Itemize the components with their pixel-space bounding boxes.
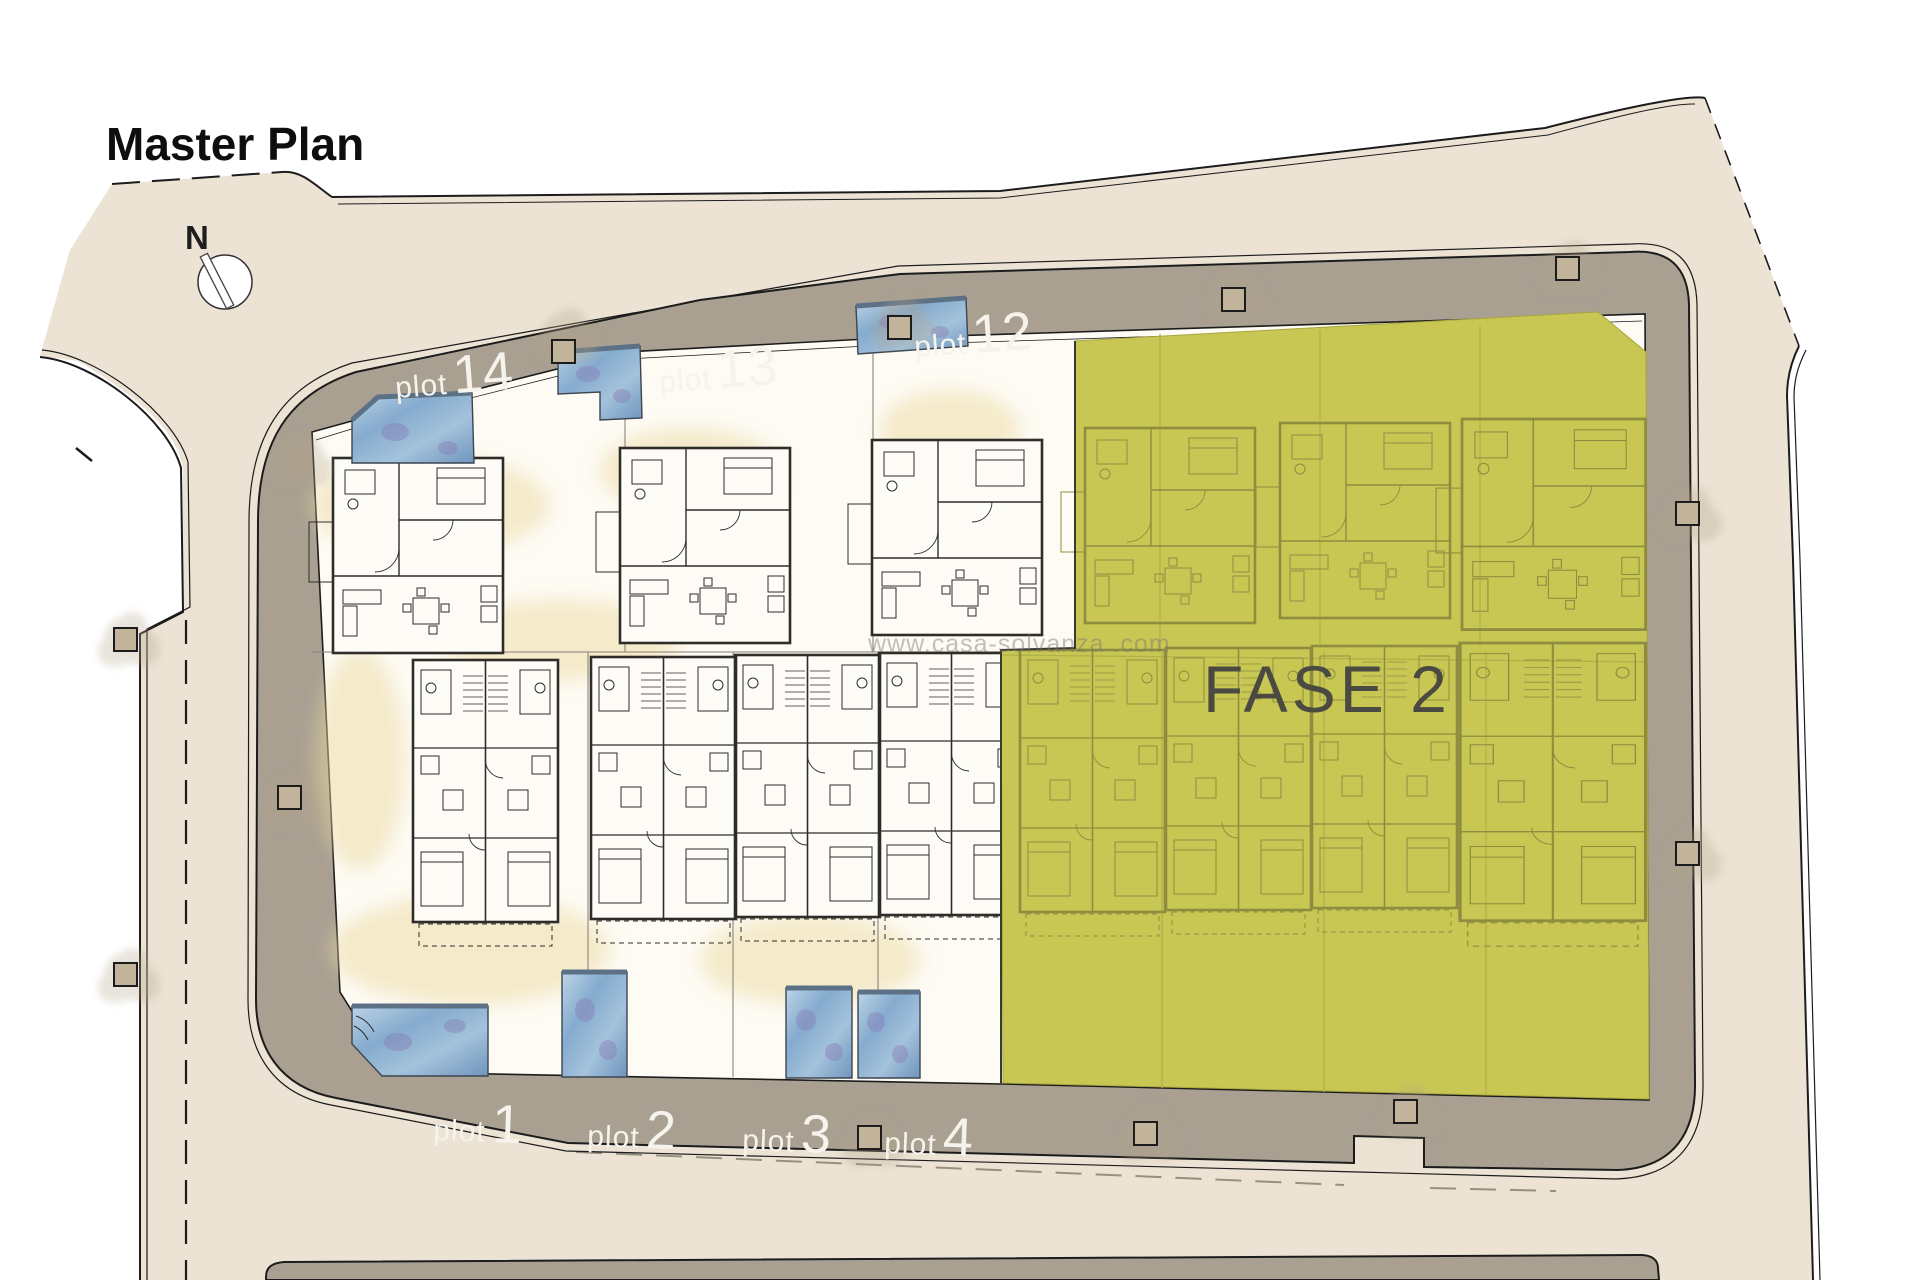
pool-plot-3 (786, 988, 852, 1078)
post-marker (552, 340, 575, 363)
boundary-tick (76, 448, 92, 461)
pool-plot-4 (858, 992, 920, 1078)
post-marker (114, 963, 137, 986)
watermark: www.casa-solvanza .com (867, 630, 1171, 658)
post-marker (1676, 502, 1699, 525)
north-label: N (185, 219, 209, 256)
houses-phase1 (309, 440, 1042, 946)
post-marker (1676, 842, 1699, 865)
pool-plot-1 (352, 1006, 488, 1076)
fase-2-label: FASE 2 (1203, 652, 1451, 726)
post-marker (278, 786, 301, 809)
post-marker (888, 316, 911, 339)
post-marker (1394, 1100, 1417, 1123)
post-marker (114, 628, 137, 651)
master-plan-drawing: FASE 2 plot14 plot13 plot12 plot1 (0, 0, 1920, 1280)
page-title: Master Plan (106, 118, 364, 170)
post-marker (858, 1126, 881, 1149)
post-marker (1134, 1122, 1157, 1145)
site-plan-svg: FASE 2 plot14 plot13 plot12 plot1 (0, 0, 1920, 1280)
pool-plot-2 (562, 972, 627, 1077)
fase-2-zone: FASE 2 (1001, 312, 1649, 1099)
post-marker (1556, 257, 1579, 280)
post-marker (1222, 288, 1245, 311)
